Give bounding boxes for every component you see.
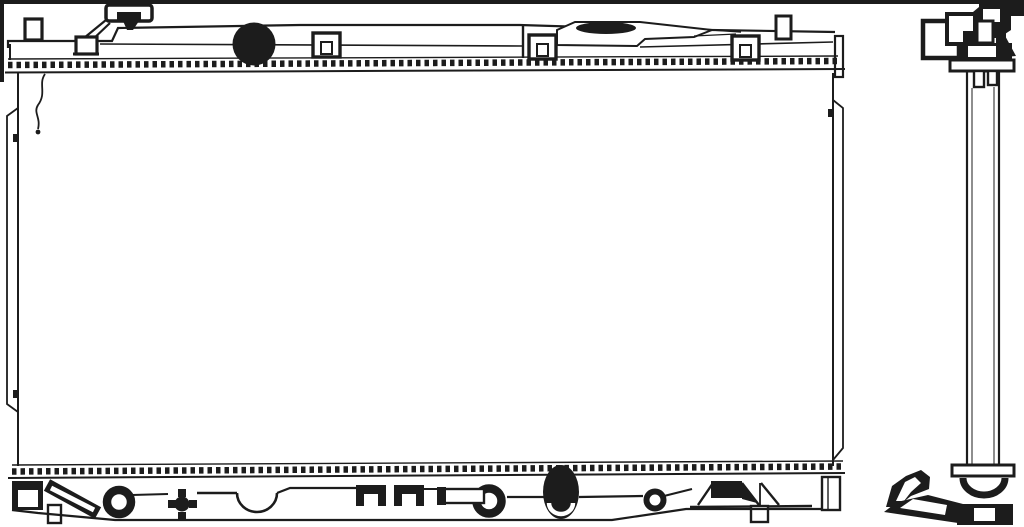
- clip-slot: [321, 42, 332, 54]
- bolt-center: [175, 497, 190, 512]
- overflow-tube-end: [36, 130, 41, 135]
- radiator-side-view: [884, 2, 1024, 525]
- side-bottom-flange: [952, 465, 1014, 476]
- clip-slot: [537, 44, 548, 56]
- core-right-outer-channel: [833, 100, 843, 460]
- pipe-end-cap: [437, 487, 446, 505]
- top-edge-strip: [0, 0, 1024, 4]
- bolt-lug-top: [178, 489, 186, 497]
- left-tick-upper: [13, 134, 19, 142]
- tank-line-f: [579, 496, 643, 497]
- outlet-pipe-body: [543, 465, 579, 519]
- ring-fitting-left: [107, 490, 131, 514]
- core-left-outer-channel: [7, 108, 18, 412]
- radiator-front-view: [5, 5, 845, 523]
- side-foot-bracket: [884, 470, 1013, 525]
- bracket-diag-3: [761, 483, 779, 505]
- right-tick: [828, 109, 834, 117]
- bracket-diag-1: [698, 483, 713, 505]
- clamp-body: [76, 37, 97, 54]
- cap-clamp: [73, 37, 99, 54]
- ring-fitting-small: [647, 492, 664, 509]
- bolt-lug-left: [168, 500, 176, 508]
- top-joint-serration: [8, 61, 840, 65]
- side-tab-2: [988, 71, 997, 85]
- core: [7, 72, 843, 466]
- top-joint-lower-line: [5, 69, 845, 73]
- top-tank: [5, 25, 845, 77]
- side-top-flange: [950, 60, 1014, 71]
- pi-tab-1: [356, 485, 386, 506]
- bolt-lug-right: [189, 500, 197, 508]
- side-lower-arch: [963, 478, 1005, 495]
- inlet-pipe-bore: [576, 22, 636, 34]
- bracket-wedge: [742, 483, 757, 503]
- radiator-line-drawing: [0, 0, 1024, 527]
- drain-valve-window: [18, 490, 38, 507]
- left-edge-strip: [0, 0, 4, 82]
- mounting-clip-2: [529, 35, 556, 59]
- tab-leg: [416, 494, 424, 506]
- mounting-clip-3: [732, 36, 759, 60]
- bottom-joint: [8, 461, 845, 478]
- pipe-ring-fitting: [437, 487, 502, 514]
- side-filler-neck: [977, 21, 993, 43]
- overflow-tube: [36, 74, 45, 129]
- top-right-tab: [776, 16, 791, 39]
- side-core-column: [967, 71, 999, 466]
- tank-line-c: [277, 488, 357, 493]
- tab-leg: [394, 494, 402, 506]
- tank-line-a: [132, 494, 168, 495]
- radiator-diagram-page: [0, 0, 1024, 527]
- arch-notch: [237, 493, 277, 512]
- pi-tab-2: [394, 485, 424, 506]
- arch-inner: [968, 478, 1000, 490]
- bottom-joint-serration: [12, 467, 843, 472]
- right-corner-strip: [1012, 0, 1024, 7]
- lower-mounting-bracket: [690, 481, 812, 522]
- foot-base-window: [974, 508, 995, 521]
- bolt-lug-bottom: [178, 512, 186, 519]
- tab-leg: [378, 494, 386, 506]
- side-cap-assembly: [923, 2, 1024, 60]
- tab-leg: [356, 494, 364, 506]
- clip-slot: [740, 45, 751, 57]
- side-tab-1: [974, 71, 984, 87]
- outlet-pipe: [543, 465, 579, 519]
- bottom-tank-outline: [12, 509, 822, 520]
- filler-neck-hole: [233, 23, 276, 66]
- mounting-clip-1: [313, 33, 340, 57]
- tank-line-g: [664, 489, 692, 496]
- cap-center: [117, 12, 141, 21]
- bolt-fitting: [168, 489, 197, 519]
- pipe-bar: [444, 489, 484, 503]
- left-tick-lower: [13, 390, 19, 398]
- inlet-pipe: [557, 22, 741, 46]
- side-neck-window: [968, 46, 996, 57]
- tab-bar: [356, 485, 386, 494]
- bracket-block: [711, 481, 742, 498]
- top-left-tab: [25, 19, 42, 40]
- bottom-right-end-cap: [822, 477, 840, 510]
- tab-bar: [394, 485, 424, 494]
